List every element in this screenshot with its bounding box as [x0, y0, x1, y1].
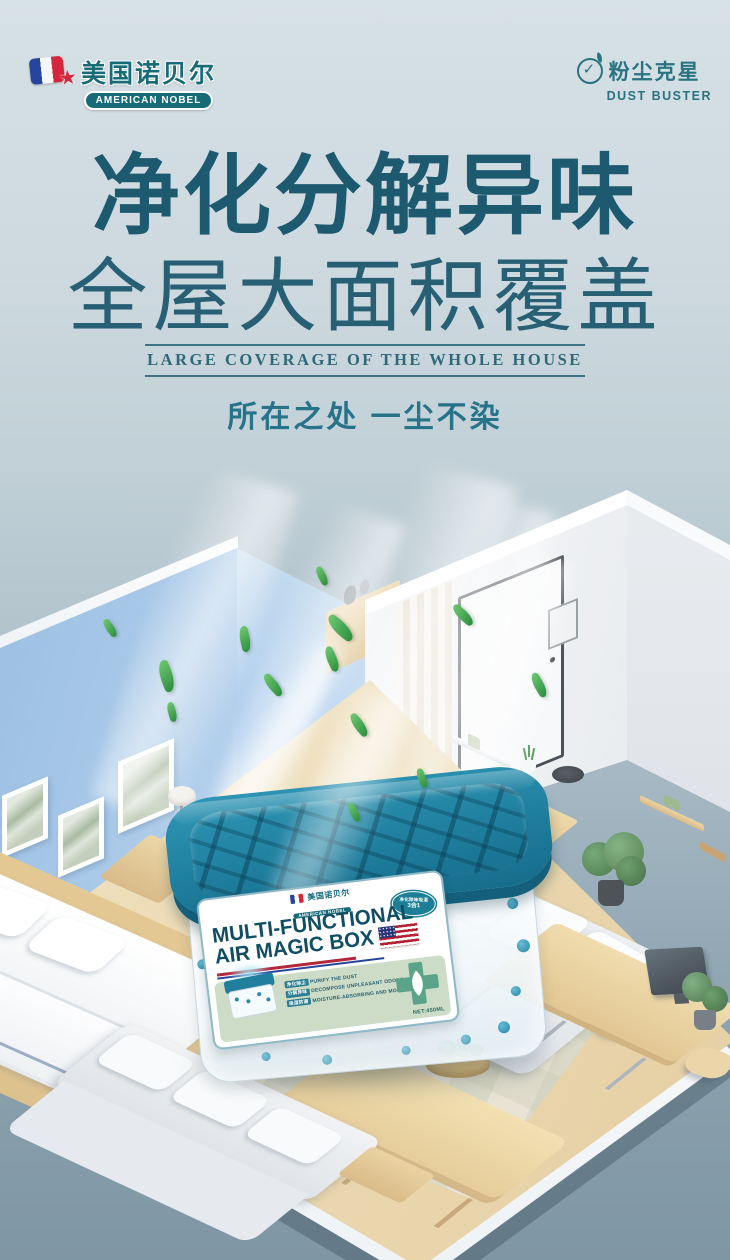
hero-title-line1: 净化分解异味 [0, 152, 730, 240]
check-leaf-icon [577, 58, 603, 84]
dust-buster-logo: 粉尘克星 DUST BUSTER [577, 56, 712, 103]
brand-name-en: AMERICAN NOBEL [84, 91, 214, 110]
dust-buster-en: DUST BUSTER [607, 89, 712, 103]
plant-foliage [702, 986, 728, 1012]
brand-logo: ★ 美国诺贝尔 AMERICAN NOBEL [28, 54, 216, 110]
plant-pot [598, 880, 624, 906]
hero-subtitle-en: LARGE COVERAGE OF THE WHOLE HOUSE [145, 346, 585, 375]
divider-line-bottom [145, 375, 585, 377]
product-thumbnail [218, 959, 284, 1022]
brand-name-cn: 美国诺贝尔 [81, 54, 216, 90]
hero-subtitle-ribbon: LARGE COVERAGE OF THE WHOLE HOUSE [145, 344, 585, 377]
hero-tagline: 所在之处 一尘不染 [0, 392, 730, 436]
hero-title-line2: 全屋大面积覆盖 [0, 258, 730, 338]
dust-buster-cn: 粉尘克星 [609, 56, 701, 86]
wall-lamp [700, 841, 726, 863]
green-cross-leaf-icon [394, 960, 441, 1007]
plant-pot [694, 1010, 716, 1030]
us-flag-icon [378, 922, 419, 948]
label-brand-flag-icon [290, 894, 304, 905]
poster: ★ 美国诺贝尔 AMERICAN NOBEL 粉尘克星 DUST BUSTER … [0, 0, 730, 1260]
speaker [552, 766, 584, 783]
product-label: 美国诺贝尔 AMERICAN NOBEL 净化除味吸湿 3合1 MULTI-FU… [196, 869, 461, 1050]
brand-flag-icon: ★ [26, 52, 73, 90]
net-content: NET:450ML [413, 1006, 446, 1016]
